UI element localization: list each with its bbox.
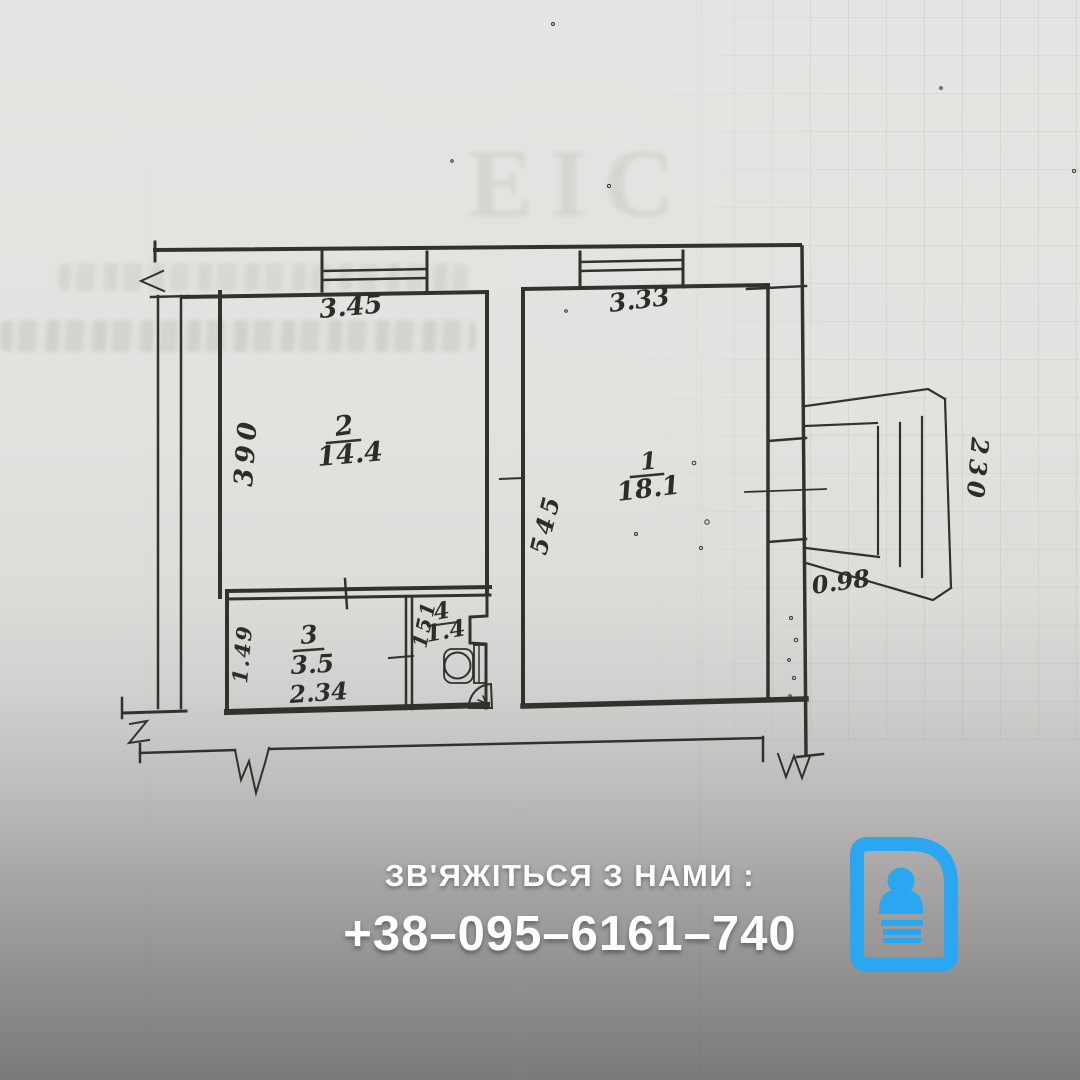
room1-number: 1	[639, 446, 658, 476]
contact-card-icon	[850, 837, 958, 972]
real-estate-floorplan-post: ЕІС	[0, 0, 1080, 1080]
dim-room1-left: 545	[524, 490, 567, 557]
dim-room3-left: 1.49	[227, 623, 257, 684]
dim-room2-left: 390	[229, 416, 264, 487]
card-text-line-3	[883, 938, 921, 943]
dim-balcony-side: 230	[960, 435, 995, 503]
dimension-labels: 3.45 390 3.33 545 1.49 2.34 151 0.98 230	[227, 282, 995, 709]
room1-area: 18.1	[615, 470, 682, 507]
person-body-icon	[879, 889, 923, 914]
dim-room3-bottom: 2.34	[287, 676, 348, 709]
room3-number: 3	[299, 620, 319, 650]
card-text-line-1	[881, 920, 923, 926]
dim-room1-top: 3.33	[607, 282, 671, 318]
room2-area: 14.4	[316, 436, 384, 473]
dim-balcony-bottom: 0.98	[810, 563, 872, 600]
top-wall-windows	[322, 251, 683, 291]
contact-label: ЗВ'ЯЖІТЬСЯ З НАМИ :	[300, 858, 840, 894]
ink-specks	[451, 23, 1076, 698]
card-text-line-2	[883, 929, 921, 935]
contact-overlay: ЗВ'ЯЖІТЬСЯ З НАМИ : +38–095–6161–740	[300, 858, 840, 962]
room-number-underlines	[294, 440, 663, 651]
room3-area: 3.5	[290, 649, 335, 680]
dim-room2-top: 3.45	[318, 290, 384, 325]
contact-phone-number: +38–095–6161–740	[300, 906, 840, 962]
